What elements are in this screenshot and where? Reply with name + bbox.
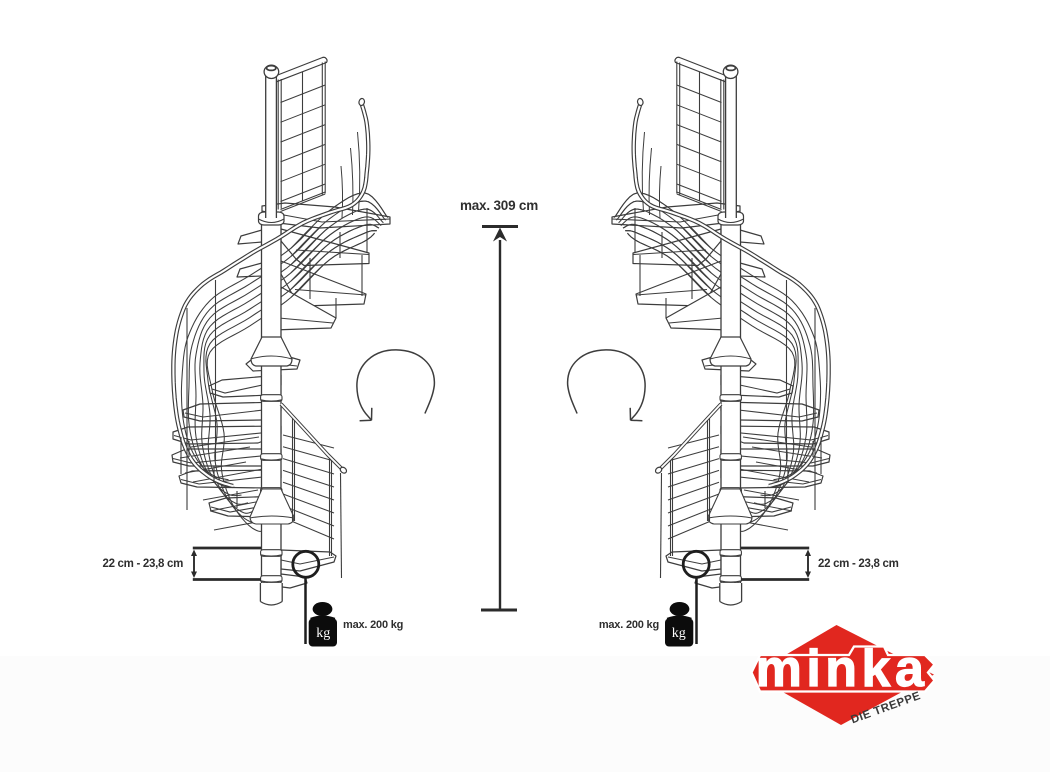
svg-text:max. 200 kg: max. 200 kg: [343, 619, 403, 631]
svg-text:kg: kg: [316, 626, 330, 641]
svg-text:max. 309 cm: max. 309 cm: [460, 198, 538, 213]
svg-text:kg: kg: [672, 626, 686, 641]
svg-text:max. 200 kg: max. 200 kg: [599, 619, 659, 631]
svg-text:minka: minka: [756, 640, 929, 698]
svg-text:22 cm - 23,8 cm: 22 cm - 23,8 cm: [102, 558, 183, 570]
svg-text:22 cm - 23,8 cm: 22 cm - 23,8 cm: [818, 558, 899, 570]
